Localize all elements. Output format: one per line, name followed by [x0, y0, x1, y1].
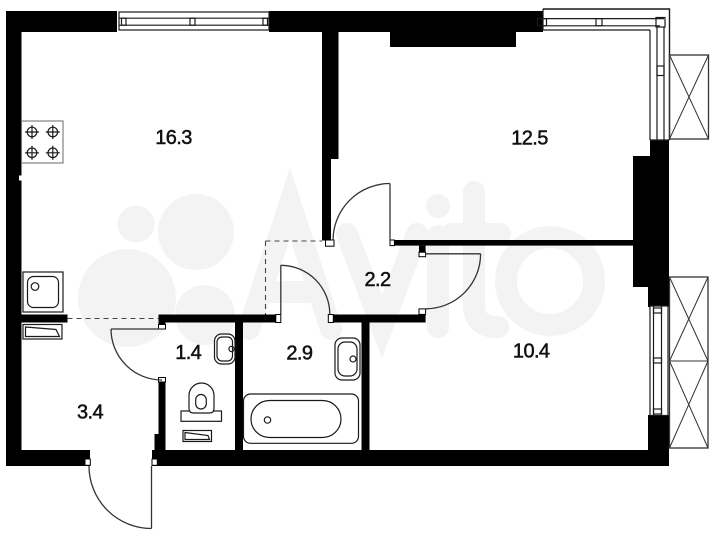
svg-text:1.4: 1.4	[175, 342, 201, 364]
svg-text:2.2: 2.2	[364, 269, 390, 291]
svg-text:16.3: 16.3	[155, 127, 192, 149]
svg-text:12.5: 12.5	[511, 127, 548, 149]
svg-text:3.4: 3.4	[77, 401, 103, 423]
svg-text:2.9: 2.9	[286, 343, 312, 365]
svg-text:10.4: 10.4	[513, 340, 550, 362]
